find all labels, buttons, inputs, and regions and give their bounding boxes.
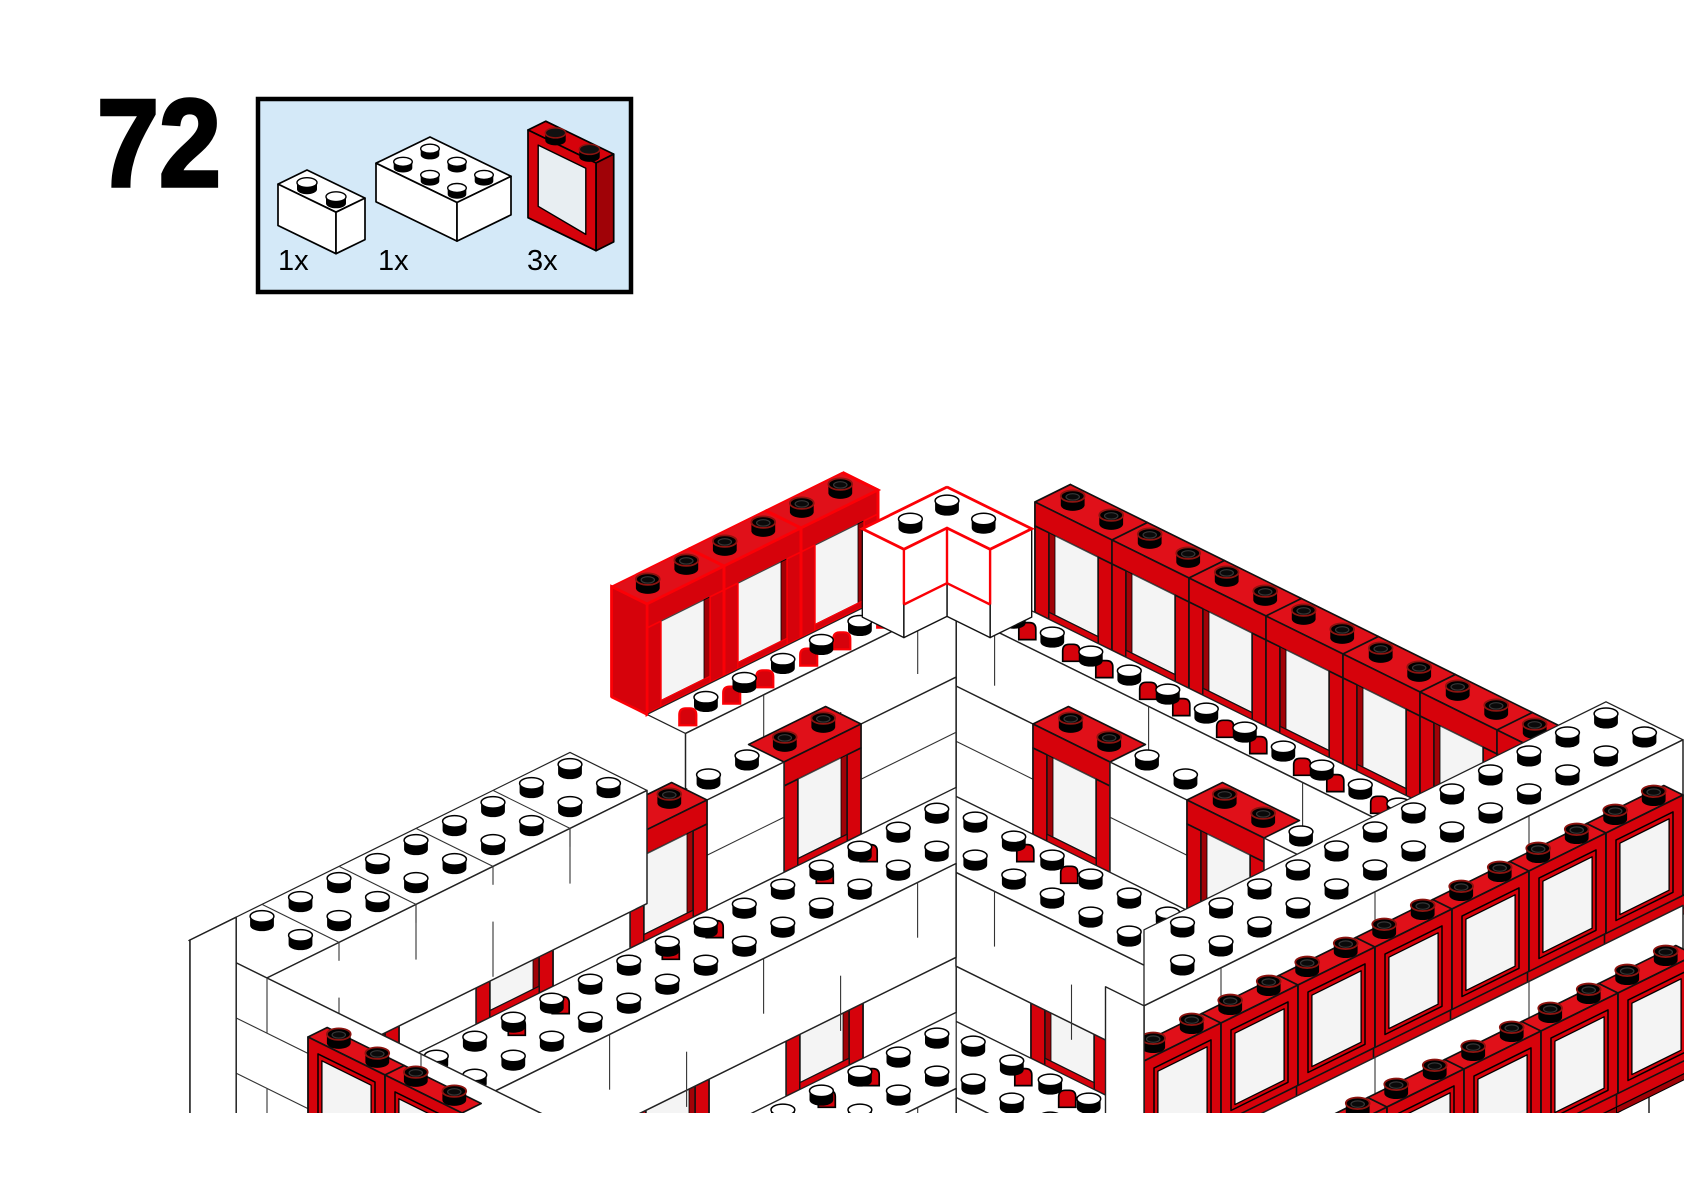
svg-text:1x: 1x: [278, 245, 309, 277]
svg-text:1x: 1x: [378, 245, 409, 277]
svg-text:72: 72: [97, 75, 221, 213]
svg-text:3x: 3x: [527, 245, 558, 277]
